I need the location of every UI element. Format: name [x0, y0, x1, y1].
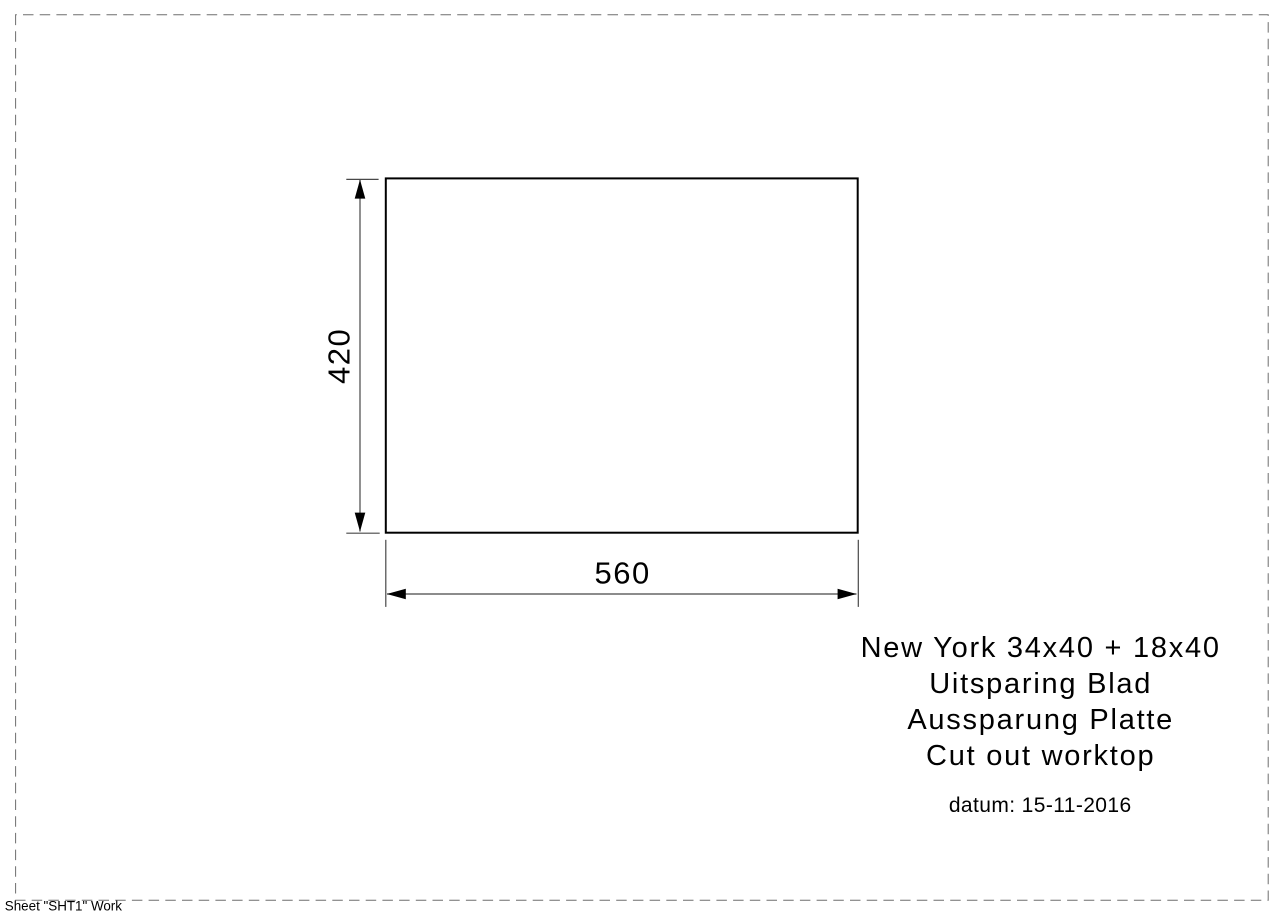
svg-text:Cut out worktop: Cut out worktop	[926, 740, 1155, 772]
svg-text:Sheet "SHT1" Work: Sheet "SHT1" Work	[5, 898, 122, 913]
svg-text:420: 420	[322, 328, 357, 384]
svg-text:New York 34x40 + 18x40: New York 34x40 + 18x40	[861, 632, 1221, 664]
svg-text:560: 560	[594, 556, 650, 591]
svg-text:Aussparung Platte: Aussparung Platte	[907, 704, 1174, 736]
svg-text:datum: 15-11-2016: datum: 15-11-2016	[949, 794, 1132, 817]
svg-text:Uitsparing Blad: Uitsparing Blad	[929, 668, 1152, 700]
